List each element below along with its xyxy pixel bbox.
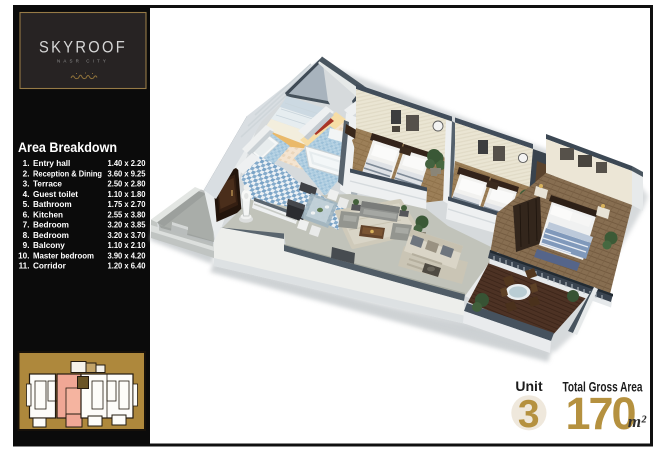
svg-text:3.90 x 4.20: 3.90 x 4.20 bbox=[108, 251, 146, 260]
svg-text:6.: 6. bbox=[23, 210, 30, 219]
svg-text:4.: 4. bbox=[23, 190, 30, 199]
svg-text:3.: 3. bbox=[23, 180, 30, 189]
svg-text:2.50 x 2.80: 2.50 x 2.80 bbox=[108, 180, 146, 189]
svg-text:Bedroom: Bedroom bbox=[33, 221, 69, 230]
svg-text:1.20 x 6.40: 1.20 x 6.40 bbox=[108, 262, 146, 271]
svg-text:Terrace: Terrace bbox=[33, 180, 62, 189]
svg-text:Area Breakdown: Area Breakdown bbox=[18, 139, 117, 155]
svg-text:1.: 1. bbox=[23, 159, 30, 168]
svg-text:m²: m² bbox=[628, 412, 647, 431]
svg-text:Reception & Dining: Reception & Dining bbox=[33, 169, 102, 178]
svg-text:Bedroom: Bedroom bbox=[33, 231, 69, 240]
svg-text:3.60 x 9.25: 3.60 x 9.25 bbox=[108, 169, 146, 178]
svg-text:170: 170 bbox=[565, 388, 635, 439]
svg-text:Entry hall: Entry hall bbox=[33, 159, 70, 168]
svg-text:11.: 11. bbox=[19, 262, 30, 271]
svg-text:Balcony: Balcony bbox=[33, 241, 65, 250]
svg-text:Kitchen: Kitchen bbox=[33, 210, 63, 219]
svg-text:Corridor: Corridor bbox=[33, 262, 67, 271]
svg-text:2.55 x 3.80: 2.55 x 3.80 bbox=[108, 210, 146, 219]
svg-text:1.40 x 2.20: 1.40 x 2.20 bbox=[108, 159, 146, 168]
svg-text:9.: 9. bbox=[23, 241, 30, 250]
svg-text:8.: 8. bbox=[23, 231, 30, 240]
svg-text:2.: 2. bbox=[23, 169, 30, 178]
svg-text:Guest toilet: Guest toilet bbox=[33, 190, 78, 199]
svg-text:1.10 x 1.80: 1.10 x 1.80 bbox=[108, 190, 146, 199]
svg-text:3: 3 bbox=[518, 393, 540, 436]
svg-text:3.20 x 3.85: 3.20 x 3.85 bbox=[108, 221, 146, 230]
svg-text:3.20 x 3.70: 3.20 x 3.70 bbox=[108, 231, 146, 240]
svg-text:10.: 10. bbox=[18, 251, 29, 260]
svg-text:5.: 5. bbox=[23, 200, 30, 209]
svg-text:SKYROOF: SKYROOF bbox=[39, 39, 127, 57]
svg-text:Master bedroom: Master bedroom bbox=[33, 251, 94, 260]
svg-text:Unit: Unit bbox=[515, 378, 543, 394]
svg-text:NASR CITY: NASR CITY bbox=[57, 59, 109, 64]
svg-text:1.10 x 2.10: 1.10 x 2.10 bbox=[108, 241, 146, 250]
svg-text:7.: 7. bbox=[23, 221, 30, 230]
svg-text:1.75 x 2.70: 1.75 x 2.70 bbox=[108, 200, 146, 209]
svg-text:Bathroom: Bathroom bbox=[33, 200, 72, 209]
